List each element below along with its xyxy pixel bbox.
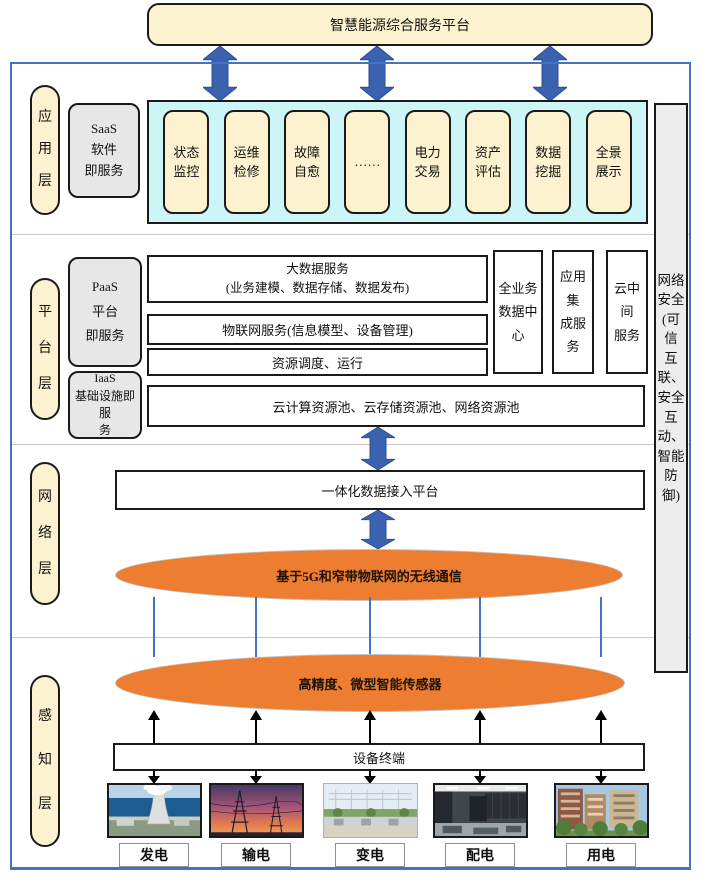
app-box-status-monitoring: 状态 监控 [163, 110, 209, 214]
category-label-transformation: 变电 [335, 843, 405, 867]
smart-energy-architecture-diagram: 智慧能源综合服务平台 应 用 层 平 台 层 网 络 层 感 知 层 SaaS … [0, 0, 711, 879]
saas-box: SaaS 软件 即服务 [68, 103, 140, 198]
paas-box: PaaS 平台 即服务 [68, 257, 142, 367]
connector-line [153, 597, 155, 657]
iot-service-box: 物联网服务(信息模型、设备管理) [147, 314, 488, 345]
app-box-ellipsis: …… [344, 110, 390, 214]
resource-scheduling-box: 资源调度、运行 [147, 348, 488, 376]
iaas-box: IaaS 基础设施即服 务 [68, 371, 142, 439]
device-terminal-box: 设备终端 [113, 743, 645, 771]
layer-label-perception: 感 知 层 [30, 675, 60, 847]
platform-title: 智慧能源综合服务平台 [147, 3, 653, 46]
photo-power-transmission [209, 783, 304, 838]
layer-divider [12, 444, 689, 445]
cloud-pool-box: 云计算资源池、云存储资源池、网络资源池 [147, 385, 645, 427]
category-label-generation: 发电 [119, 843, 189, 867]
layer-divider [12, 234, 689, 235]
layer-label-platform: 平 台 层 [30, 278, 60, 420]
double-arrow-icon [361, 510, 395, 549]
up-arrow-icon [595, 710, 607, 743]
layer-label-application: 应 用 层 [30, 85, 60, 215]
data-access-platform-box: 一体化数据接入平台 [115, 470, 645, 510]
category-label-transmission: 输电 [221, 843, 291, 867]
photo-power-transformation [323, 783, 418, 838]
data-center-box: 全业务 数据中 心 [493, 250, 543, 374]
connector-line [479, 597, 481, 657]
layer-label-network: 网 络 层 [30, 462, 60, 605]
up-arrow-icon [250, 710, 262, 743]
category-label-distribution: 配电 [445, 843, 515, 867]
app-box-operation-maintenance: 运维 检修 [224, 110, 270, 214]
cloud-middleware-box: 云中间 服务 [606, 250, 648, 374]
photo-power-distribution [433, 783, 528, 838]
app-integration-box: 应用集 成服务 [552, 250, 594, 374]
network-security-bar: 网络 安全 (可信 互联、 安全 互动、 智能 防御) [654, 103, 688, 673]
wireless-communication-ellipse: 基于5G和窄带物联网的无线通信 [115, 549, 623, 601]
up-arrow-icon [474, 710, 486, 743]
app-box-data-mining: 数据 挖掘 [525, 110, 571, 214]
photo-power-generation [107, 783, 202, 838]
double-arrow-icon [361, 427, 395, 470]
app-box-asset-evaluation: 资产 评估 [465, 110, 511, 214]
smart-sensor-ellipse: 高精度、微型智能传感器 [115, 654, 625, 712]
connector-line [600, 597, 602, 657]
category-label-consumption: 用电 [566, 843, 636, 867]
application-container: 状态 监控 运维 检修 故障 自愈 …… 电力 交易 资产 评估 数据 挖掘 全… [147, 100, 648, 224]
up-arrow-icon [148, 710, 160, 743]
up-arrow-icon [364, 710, 376, 743]
connector-line [255, 597, 257, 657]
app-box-power-trading: 电力 交易 [405, 110, 451, 214]
bigdata-service-box: 大数据服务 (业务建模、数据存储、数据发布) [147, 255, 488, 303]
app-box-panorama-display: 全景 展示 [586, 110, 632, 214]
app-box-fault-self-healing: 故障 自愈 [284, 110, 330, 214]
connector-line [369, 597, 371, 657]
layer-divider [12, 637, 689, 638]
photo-power-consumption [554, 783, 649, 838]
